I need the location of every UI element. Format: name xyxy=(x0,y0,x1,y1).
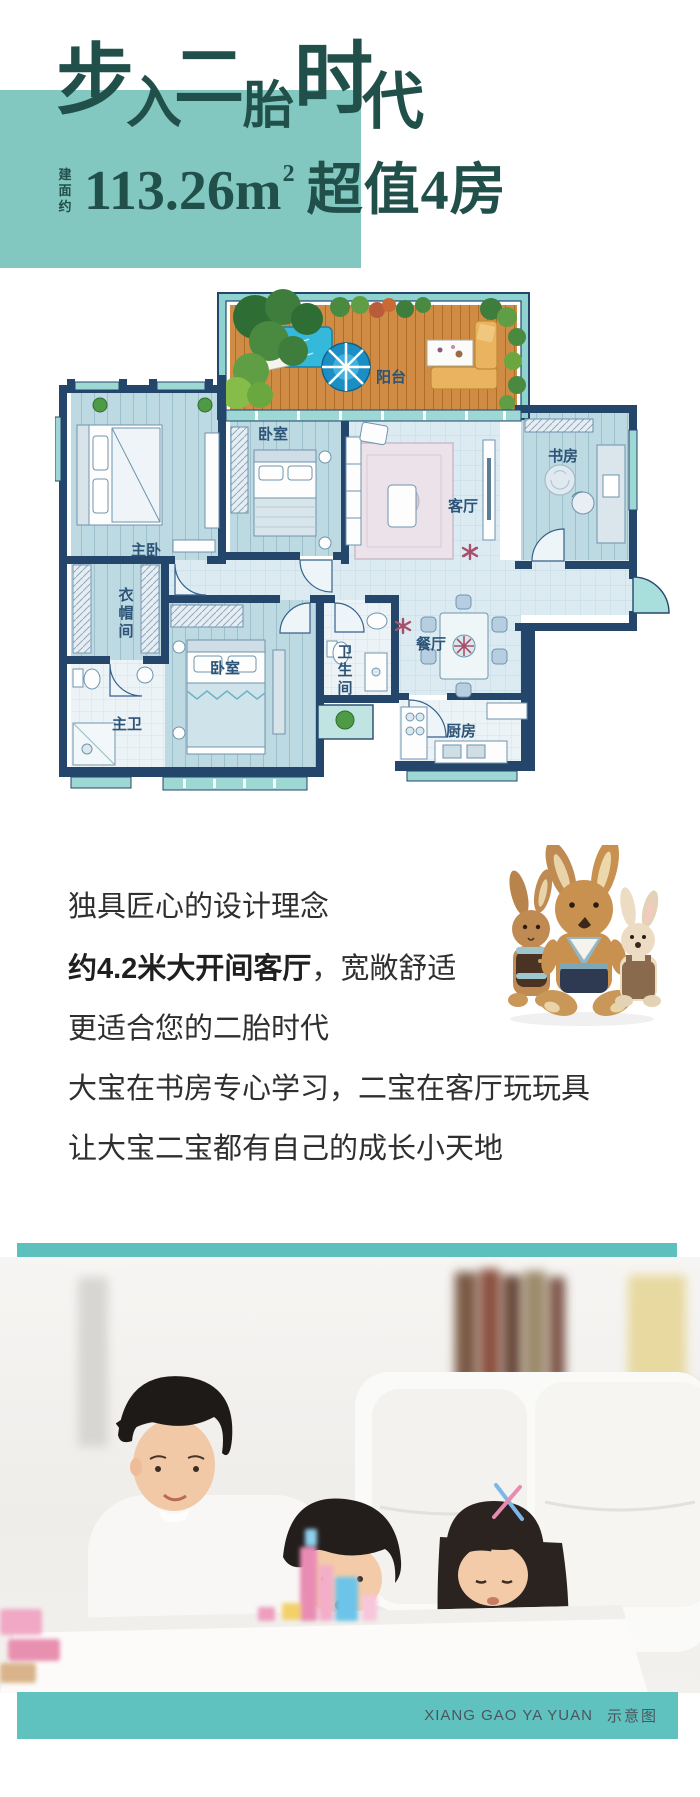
balcony: 阳台 xyxy=(218,289,529,419)
copy-line-5: 让大宝二宝都有自己的成长小天地 xyxy=(68,1132,503,1166)
area-headline: 113.26m2超值4房 xyxy=(84,158,507,225)
balcony-label: 阳台 xyxy=(376,368,406,386)
entrance-door xyxy=(633,577,669,613)
area-prefix-vertical: 建 面 约 xyxy=(57,167,73,215)
kitchen-label: 厨房 xyxy=(446,722,476,740)
floor-plan: 阳台 xyxy=(55,255,670,805)
living-label: 客厅 xyxy=(447,497,478,515)
bath-char: 间 xyxy=(337,679,352,697)
ac-ledge xyxy=(318,705,373,739)
promo-poster: 步 入 二 胎 时 代 建 面 约 113.26m2超值4房 xyxy=(0,0,700,1797)
floor-plan-svg: 阳台 xyxy=(55,255,670,805)
caption-project-name: XIANG GAO YA YUAN xyxy=(424,1707,593,1724)
area-value: 113.26m xyxy=(84,160,282,222)
cloak-char: 帽 xyxy=(118,604,133,622)
master-label: 主卧 xyxy=(131,541,161,559)
family-photo xyxy=(0,1257,700,1693)
title-char: 二 xyxy=(174,44,244,114)
title-char: 步 xyxy=(56,42,134,120)
copy-line-4: 大宝在书房专心学习，二宝在客厅玩玩具 xyxy=(68,1072,590,1106)
dining-label: 餐厅 xyxy=(416,635,446,653)
master-bath-label: 主卫 xyxy=(112,715,142,733)
photo-top-band xyxy=(17,1243,677,1257)
copy-line-2: 约4.2米大开间客厅，宽敞舒适 xyxy=(68,952,456,986)
bedroom-top-label: 卧室 xyxy=(258,425,288,443)
balcony-table xyxy=(427,340,473,366)
title-char: 代 xyxy=(362,72,424,134)
cloak-char: 间 xyxy=(118,622,133,640)
rabbit-toys-image xyxy=(500,845,665,1030)
sqm-superscript: 2 xyxy=(283,161,295,187)
bath-char: 生 xyxy=(337,661,352,679)
rabbit-center xyxy=(535,845,634,1021)
title-char: 胎 xyxy=(243,82,294,133)
study-label: 书房 xyxy=(548,447,578,465)
cloak-char: 衣 xyxy=(118,586,133,604)
caption-schematic-note: 示意图 xyxy=(607,1705,658,1726)
balcony-sofa xyxy=(431,367,497,389)
rabbit-left xyxy=(506,868,556,1007)
copy-line-3: 更适合您的二胎时代 xyxy=(68,1012,329,1046)
copy-line-1: 独具匠心的设计理念 xyxy=(68,890,329,924)
parasol xyxy=(322,343,370,391)
photo-caption-band: XIANG GAO YA YUAN 示意图 xyxy=(17,1692,678,1739)
bath-char: 卫 xyxy=(337,644,352,661)
bedroom-bottom-label: 卧室 xyxy=(210,659,240,677)
area-tail: 超值4房 xyxy=(307,160,507,222)
